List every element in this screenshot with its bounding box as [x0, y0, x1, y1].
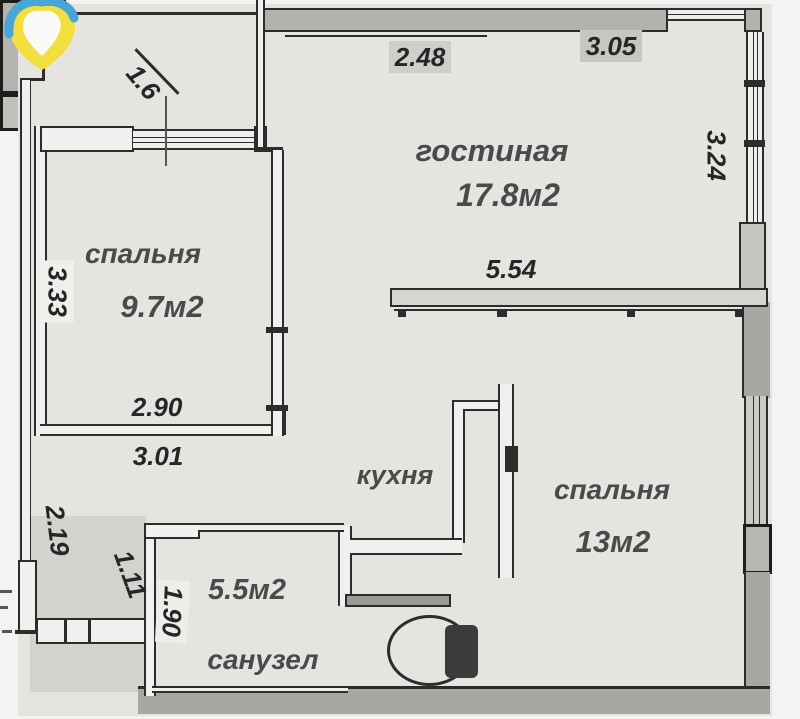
wall-living-left [256, 0, 265, 150]
wall [40, 126, 134, 152]
window-living [746, 32, 764, 222]
toilet-tank-icon [445, 625, 478, 678]
wall-hatch [2, 630, 12, 633]
room-label-bathroom: санузел [163, 644, 363, 676]
wall-niche [743, 524, 772, 574]
window-mullion [744, 140, 765, 147]
dimension-living-top-left: 2.48 [350, 42, 490, 73]
wall-living-left [271, 150, 284, 436]
wall [285, 35, 487, 37]
wall-left-outer [20, 80, 31, 562]
dimension-living-top-right: 3.05 [546, 31, 676, 62]
door-frame-mark [64, 618, 67, 644]
wall [744, 8, 762, 32]
room-label-living: гостиная [392, 133, 592, 169]
wall-hatch [0, 590, 12, 593]
window-mullion [744, 80, 765, 87]
wall-bathroom-bottom [152, 686, 348, 693]
wall-hatch [0, 606, 8, 609]
wall-top [262, 8, 668, 32]
window-bedroom1 [133, 129, 256, 150]
door-frame-mark [266, 405, 288, 411]
dimension-living-right: 3.24 [701, 116, 732, 196]
dimension-value: 2.48 [389, 41, 452, 73]
floor-plan: гостиная 17.8м2 спальня 9.7м2 спальня 13… [0, 0, 800, 719]
dimension-value: 3.05 [580, 30, 643, 62]
door-hinge-mark [505, 446, 518, 472]
wall-bathroom-top [144, 523, 200, 539]
dimension-bedroom1-bottom: 2.90 [87, 392, 227, 423]
dimension-bedroom1-left: 3.33 [42, 252, 73, 332]
room-area-living: 17.8м2 [408, 177, 608, 214]
room-area-bathroom: 5.5м2 [167, 574, 327, 607]
entry-door [36, 618, 146, 644]
wall-edge [394, 309, 744, 311]
room-area-bedroom1: 9.7м2 [62, 289, 262, 325]
room-label-kitchen: кухня [315, 460, 475, 491]
wall [18, 560, 37, 632]
location-pin-logo [2, 0, 82, 76]
dimension-value: 3.33 [42, 260, 74, 323]
dimension-value: 3.01 [127, 440, 190, 472]
room-label-bedroom2: спальня [512, 474, 712, 506]
wall-living-bottom [390, 288, 768, 307]
door-frame-mark [398, 309, 406, 317]
door-frame-mark [497, 309, 507, 317]
dimension-value: 1.90 [155, 579, 190, 643]
wall-toilet-niche [345, 594, 451, 607]
wall [739, 222, 766, 292]
dimension-corridor-bottom: 3.01 [88, 441, 228, 472]
dimension-bathroom-left: 1.90 [154, 566, 190, 657]
window-bedroom2 [744, 396, 768, 524]
door-frame-mark [88, 618, 91, 644]
wall-kitchen-bottom [350, 538, 462, 555]
wall-bathroom-top [198, 523, 344, 532]
dimension-living-bottom: 5.54 [441, 254, 581, 285]
wall-right [744, 572, 770, 688]
dimension-value: 2.90 [126, 391, 189, 423]
window [668, 8, 748, 21]
wall-right [742, 302, 770, 398]
door-frame-mark [735, 309, 743, 317]
dimension-value: 5.54 [480, 253, 543, 285]
door-frame-mark [627, 309, 635, 317]
wall-bedroom1-bottom [40, 424, 273, 436]
door-frame-mark [266, 327, 288, 333]
room-area-bedroom2: 13м2 [513, 524, 713, 560]
dimension-value: 3.24 [701, 124, 733, 187]
